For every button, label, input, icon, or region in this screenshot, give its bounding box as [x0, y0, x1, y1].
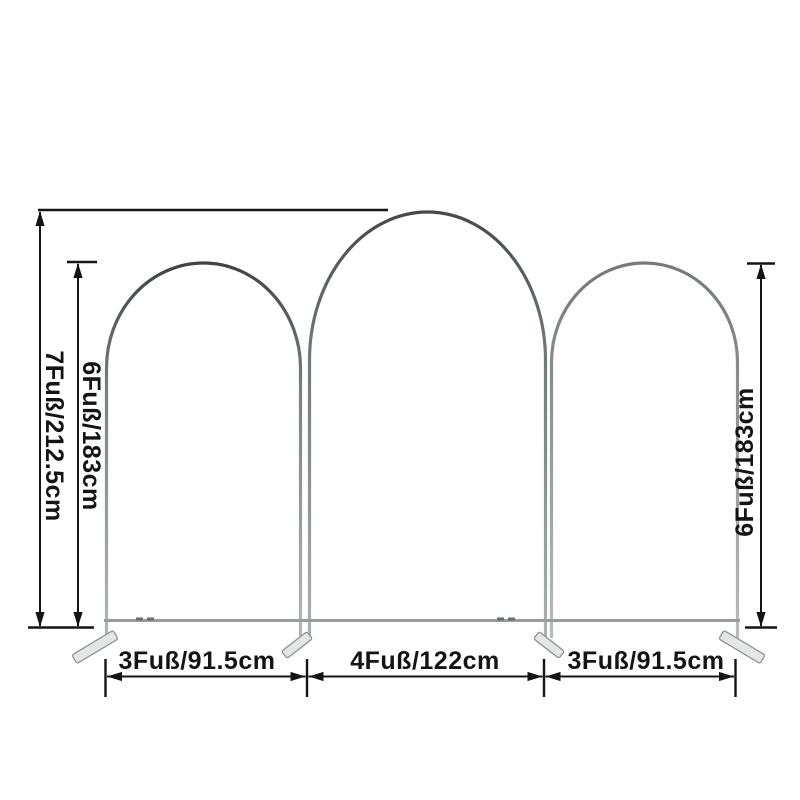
arch-frames: [72, 212, 765, 664]
crossbar-joint: [147, 618, 154, 621]
arrowhead-up: [35, 211, 44, 226]
crossbar-joint: [136, 618, 143, 621]
arrowhead-down: [35, 612, 44, 627]
right-arch-width-label: 3Fuß/91.5cm: [568, 647, 725, 675]
arrowhead-down: [756, 612, 765, 627]
arch-backdrop-dimension-diagram: 7Fuß/212.5cm 6Fuß/183cm 6Fuß/183cm: [0, 0, 800, 800]
total-height-label: 7Fuß/212.5cm: [40, 350, 68, 521]
arrowhead-right: [528, 672, 543, 681]
arrowhead-left: [546, 672, 561, 681]
crossbar-joint: [508, 618, 515, 621]
middle-arch-width-dimension: 4Fuß/122cm: [309, 647, 543, 681]
bottom-width-dimensions: 3Fuß/91.5cm 4Fuß/122cm 3Fuß/91.5cm: [106, 647, 736, 697]
left-junction-foot: [282, 632, 313, 659]
left-outer-foot: [72, 630, 118, 663]
left-arch-width-label: 3Fuß/91.5cm: [119, 647, 276, 675]
right-arch-width-dimension: 3Fuß/91.5cm: [546, 647, 735, 681]
left-arch-height-label: 6Fuß/183cm: [77, 361, 105, 511]
arrowhead-down: [73, 612, 82, 627]
left-arch-height-dimension: 6Fuß/183cm: [67, 262, 105, 627]
left-arch-frame: [107, 263, 301, 638]
middle-arch-frame: [310, 212, 546, 640]
right-arch-frame: [552, 263, 738, 638]
right-junction-foot: [534, 632, 565, 659]
diagram-canvas: 7Fuß/212.5cm 6Fuß/183cm 6Fuß/183cm: [0, 0, 800, 800]
middle-arch-width-label: 4Fuß/122cm: [350, 647, 500, 675]
left-arch-width-dimension: 3Fuß/91.5cm: [107, 647, 306, 681]
arrowhead-up: [73, 263, 82, 278]
arrowhead-right: [291, 672, 306, 681]
arrowhead-left: [309, 672, 324, 681]
arrowhead-up: [756, 264, 765, 279]
right-arch-height-label: 6Fuß/183cm: [731, 387, 759, 537]
crossbar-joint: [497, 618, 504, 621]
right-outer-foot: [719, 630, 765, 663]
